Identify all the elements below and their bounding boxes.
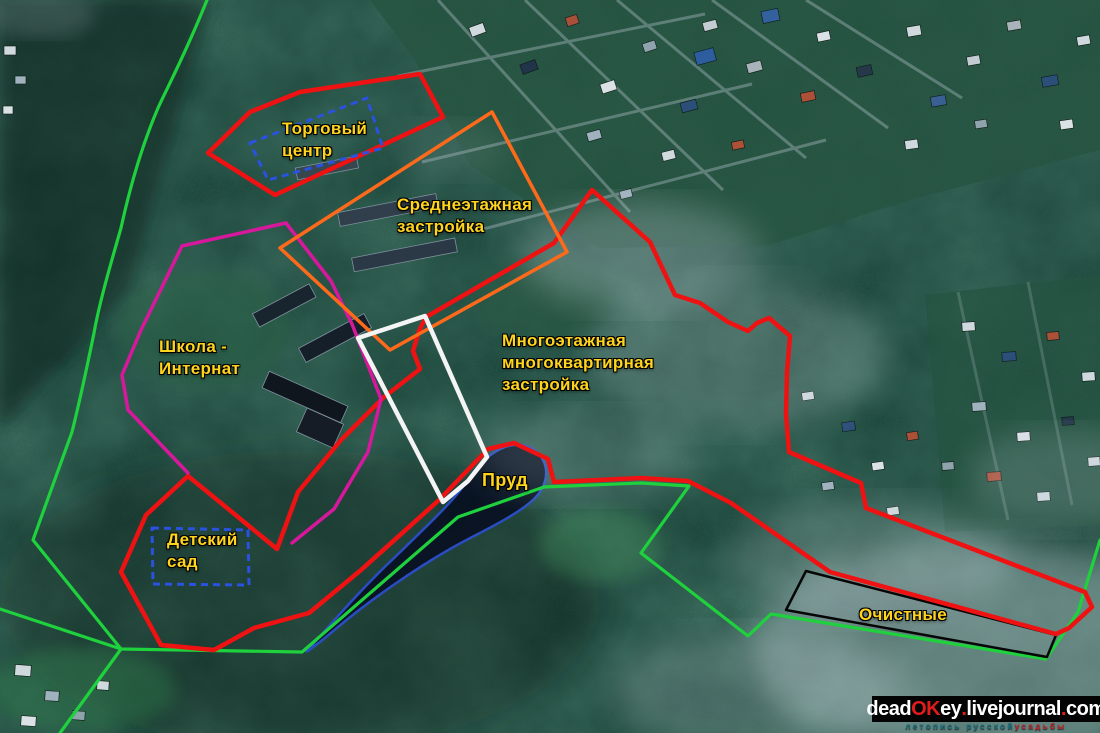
label-shopping-center: Торговый центр — [282, 118, 367, 162]
label-kindergarten: Детский сад — [167, 529, 238, 573]
watermark-part: OK — [911, 698, 940, 721]
label-mid-rise: Среднеэтажная застройка — [397, 194, 532, 238]
watermark-part: dead — [866, 698, 911, 721]
tagline-part: летопись русской — [905, 722, 1014, 731]
label-boarding-school: Школа - Интернат — [159, 336, 240, 380]
watermark-tagline: летопись русской усадьбы — [872, 722, 1100, 731]
label-pond: Пруд — [482, 469, 528, 491]
tagline-part: усадьбы — [1015, 722, 1067, 731]
watermark: deadOKey.livejournal.com — [872, 696, 1100, 722]
label-treatment-plant: Очистные — [859, 604, 947, 626]
label-multi-storey: Многоэтажная многоквартирная застройка — [502, 330, 654, 396]
annotated-satellite-map: Торговый центр Среднеэтажная застройка Ш… — [0, 0, 1100, 733]
watermark-part: livejournal — [966, 698, 1061, 721]
watermark-part: ey — [940, 698, 961, 721]
watermark-part: com — [1066, 698, 1100, 721]
